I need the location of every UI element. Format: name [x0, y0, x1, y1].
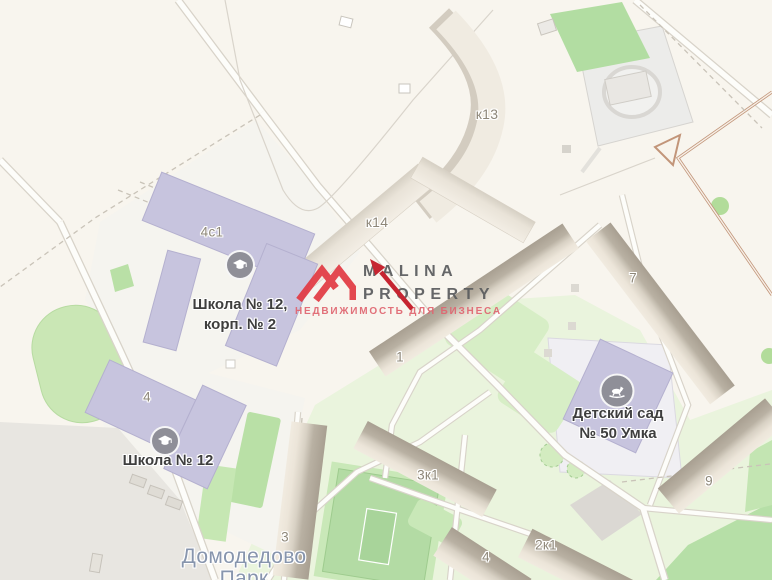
building-label-9[interactable]: 9 — [705, 474, 713, 489]
building-label-3[interactable]: 3 — [281, 530, 289, 545]
district-label[interactable]: Домодедово Парк — [182, 546, 307, 580]
graduation-cap-icon — [232, 257, 248, 273]
logo-brand-line2: PROPERTY — [363, 287, 495, 303]
building-label-4s1[interactable]: 4с1 — [201, 225, 224, 240]
school2-poi-icon[interactable] — [225, 250, 255, 280]
building-label-3k1[interactable]: 3к1 — [417, 468, 439, 483]
rocking-horse-icon — [608, 384, 627, 399]
tree — [761, 348, 772, 364]
building-label-1[interactable]: 1 — [396, 350, 404, 365]
building-label-7[interactable]: 7 — [629, 271, 637, 286]
building-label-2k1[interactable]: 2к1 — [535, 538, 557, 553]
graduation-cap-icon — [157, 433, 173, 449]
map-canvas[interactable]: к13 к14 4с1 4 1 7 3к1 9 3 2к1 4 Школа № … — [0, 0, 772, 580]
watermark-logo: MALINA PROPERTY НЕДВИЖИМОСТЬ ДЛЯ БИЗНЕСА — [296, 257, 496, 319]
malina-m-mountain-icon — [296, 261, 356, 303]
building-label-4[interactable]: 4 — [143, 390, 151, 405]
building-label-4b[interactable]: 4 — [482, 550, 490, 565]
building-label-k13[interactable]: к13 — [476, 106, 499, 122]
building-label-k14[interactable]: к14 — [366, 214, 389, 230]
school12-poi-label[interactable]: Школа № 12 — [123, 451, 214, 471]
school2-poi-label[interactable]: Школа № 12, корп. № 2 — [193, 295, 288, 335]
kindergarten-poi-label[interactable]: Детский сад № 50 Умка — [572, 404, 663, 444]
logo-tagline: НЕДВИЖИМОСТЬ ДЛЯ БИЗНЕСА — [295, 306, 502, 317]
logo-brand-line1: MALINA — [363, 264, 458, 280]
